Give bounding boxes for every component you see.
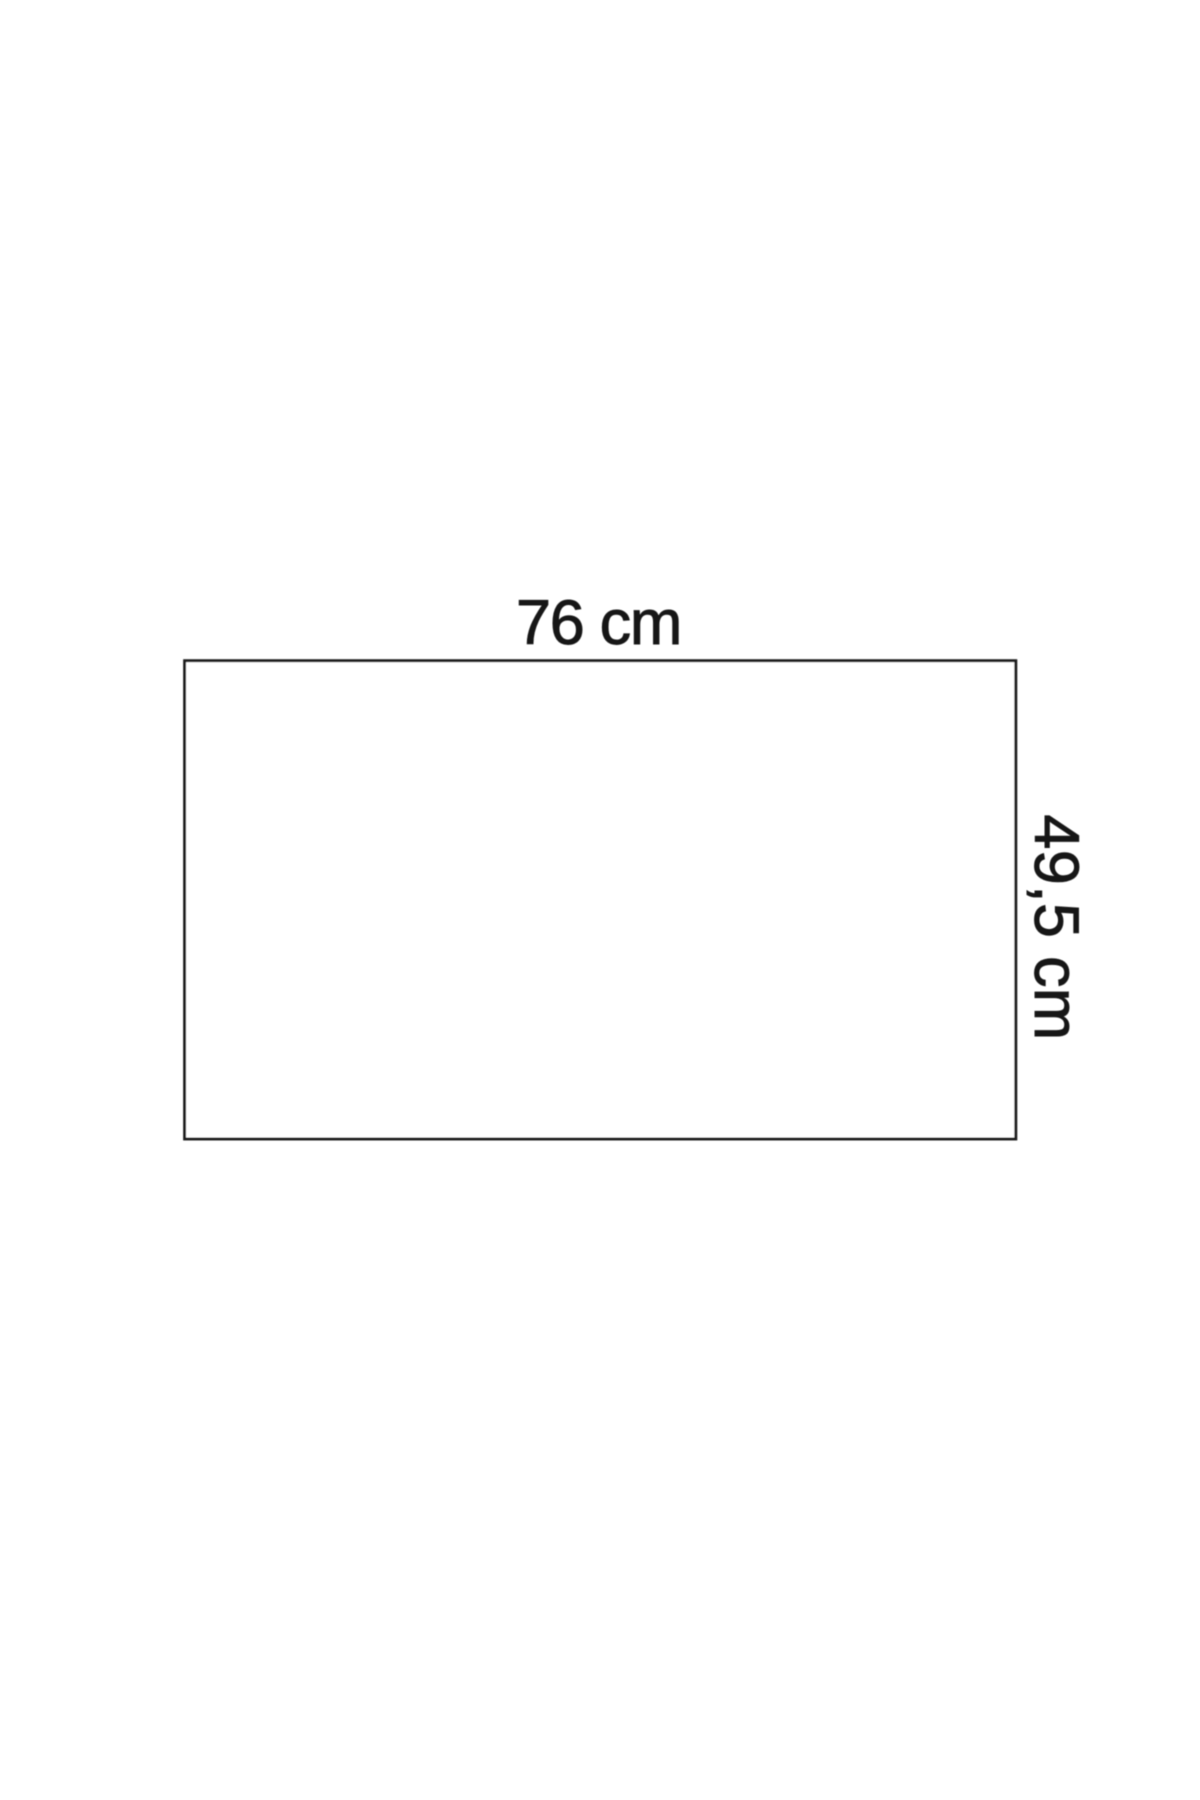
svg-text:49,5 cm: 49,5 cm [1021,814,1091,1040]
svg-text:76 cm: 76 cm [516,588,681,658]
